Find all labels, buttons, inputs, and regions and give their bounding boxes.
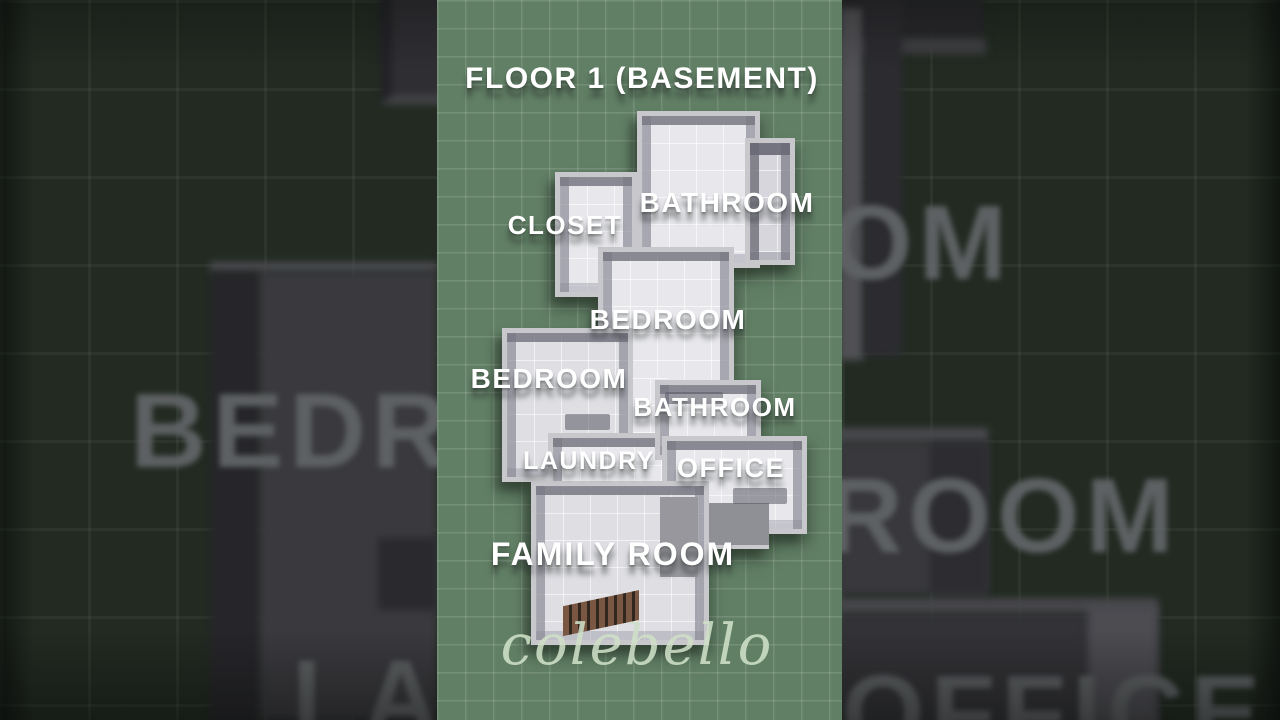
blurred-backdrop-right: OM ROOM OFFICE [842, 0, 1280, 720]
backdrop-wall-band [210, 272, 260, 720]
room-label-bathroom-top: BATHROOM [640, 189, 815, 217]
room-label-bedroom-center: BEDROOM [590, 306, 747, 334]
room-label-office: OFFICE [677, 455, 785, 482]
page-title: FLOOR 1 (BASEMENT) [465, 64, 819, 94]
backdrop-wall-band-dark [864, 0, 902, 356]
furniture-shadow [733, 488, 787, 504]
floorplan [437, 0, 842, 720]
room-label-bathroom-mid: BATHROOM [633, 394, 796, 420]
backdrop-text-room: ROOM [842, 463, 1180, 569]
backdrop-text-laundry: LAUNDRY [292, 645, 437, 720]
room-label-laundry: LAUNDRY [523, 449, 655, 474]
room-label-family-room: FAMILY ROOM [491, 538, 735, 570]
backdrop-text-bedroom: BEDROOM [130, 378, 437, 484]
backdrop-text-om: OM [842, 190, 1013, 296]
room-label-closet: CLOSET [508, 212, 622, 238]
blurred-backdrop-left: BEDROOM LAUNDRY [0, 0, 437, 720]
backdrop-furniture-shadow [378, 538, 437, 610]
furniture-shadow [565, 414, 610, 430]
creator-watermark: colebello [501, 618, 774, 674]
backdrop-room-shape [380, 0, 437, 104]
backdrop-wall-edge [210, 262, 437, 272]
backdrop-text-office: OFFICE [842, 660, 1267, 720]
floorplan-view: FLOOR 1 (BASEMENT) CLO [437, 0, 842, 720]
video-frame: BEDROOM LAUNDRY OM ROOM OFFICE FLOOR 1 (… [0, 0, 1280, 720]
room-label-bedroom-left: BEDROOM [471, 365, 628, 393]
backdrop-wall-edge [842, 428, 988, 442]
